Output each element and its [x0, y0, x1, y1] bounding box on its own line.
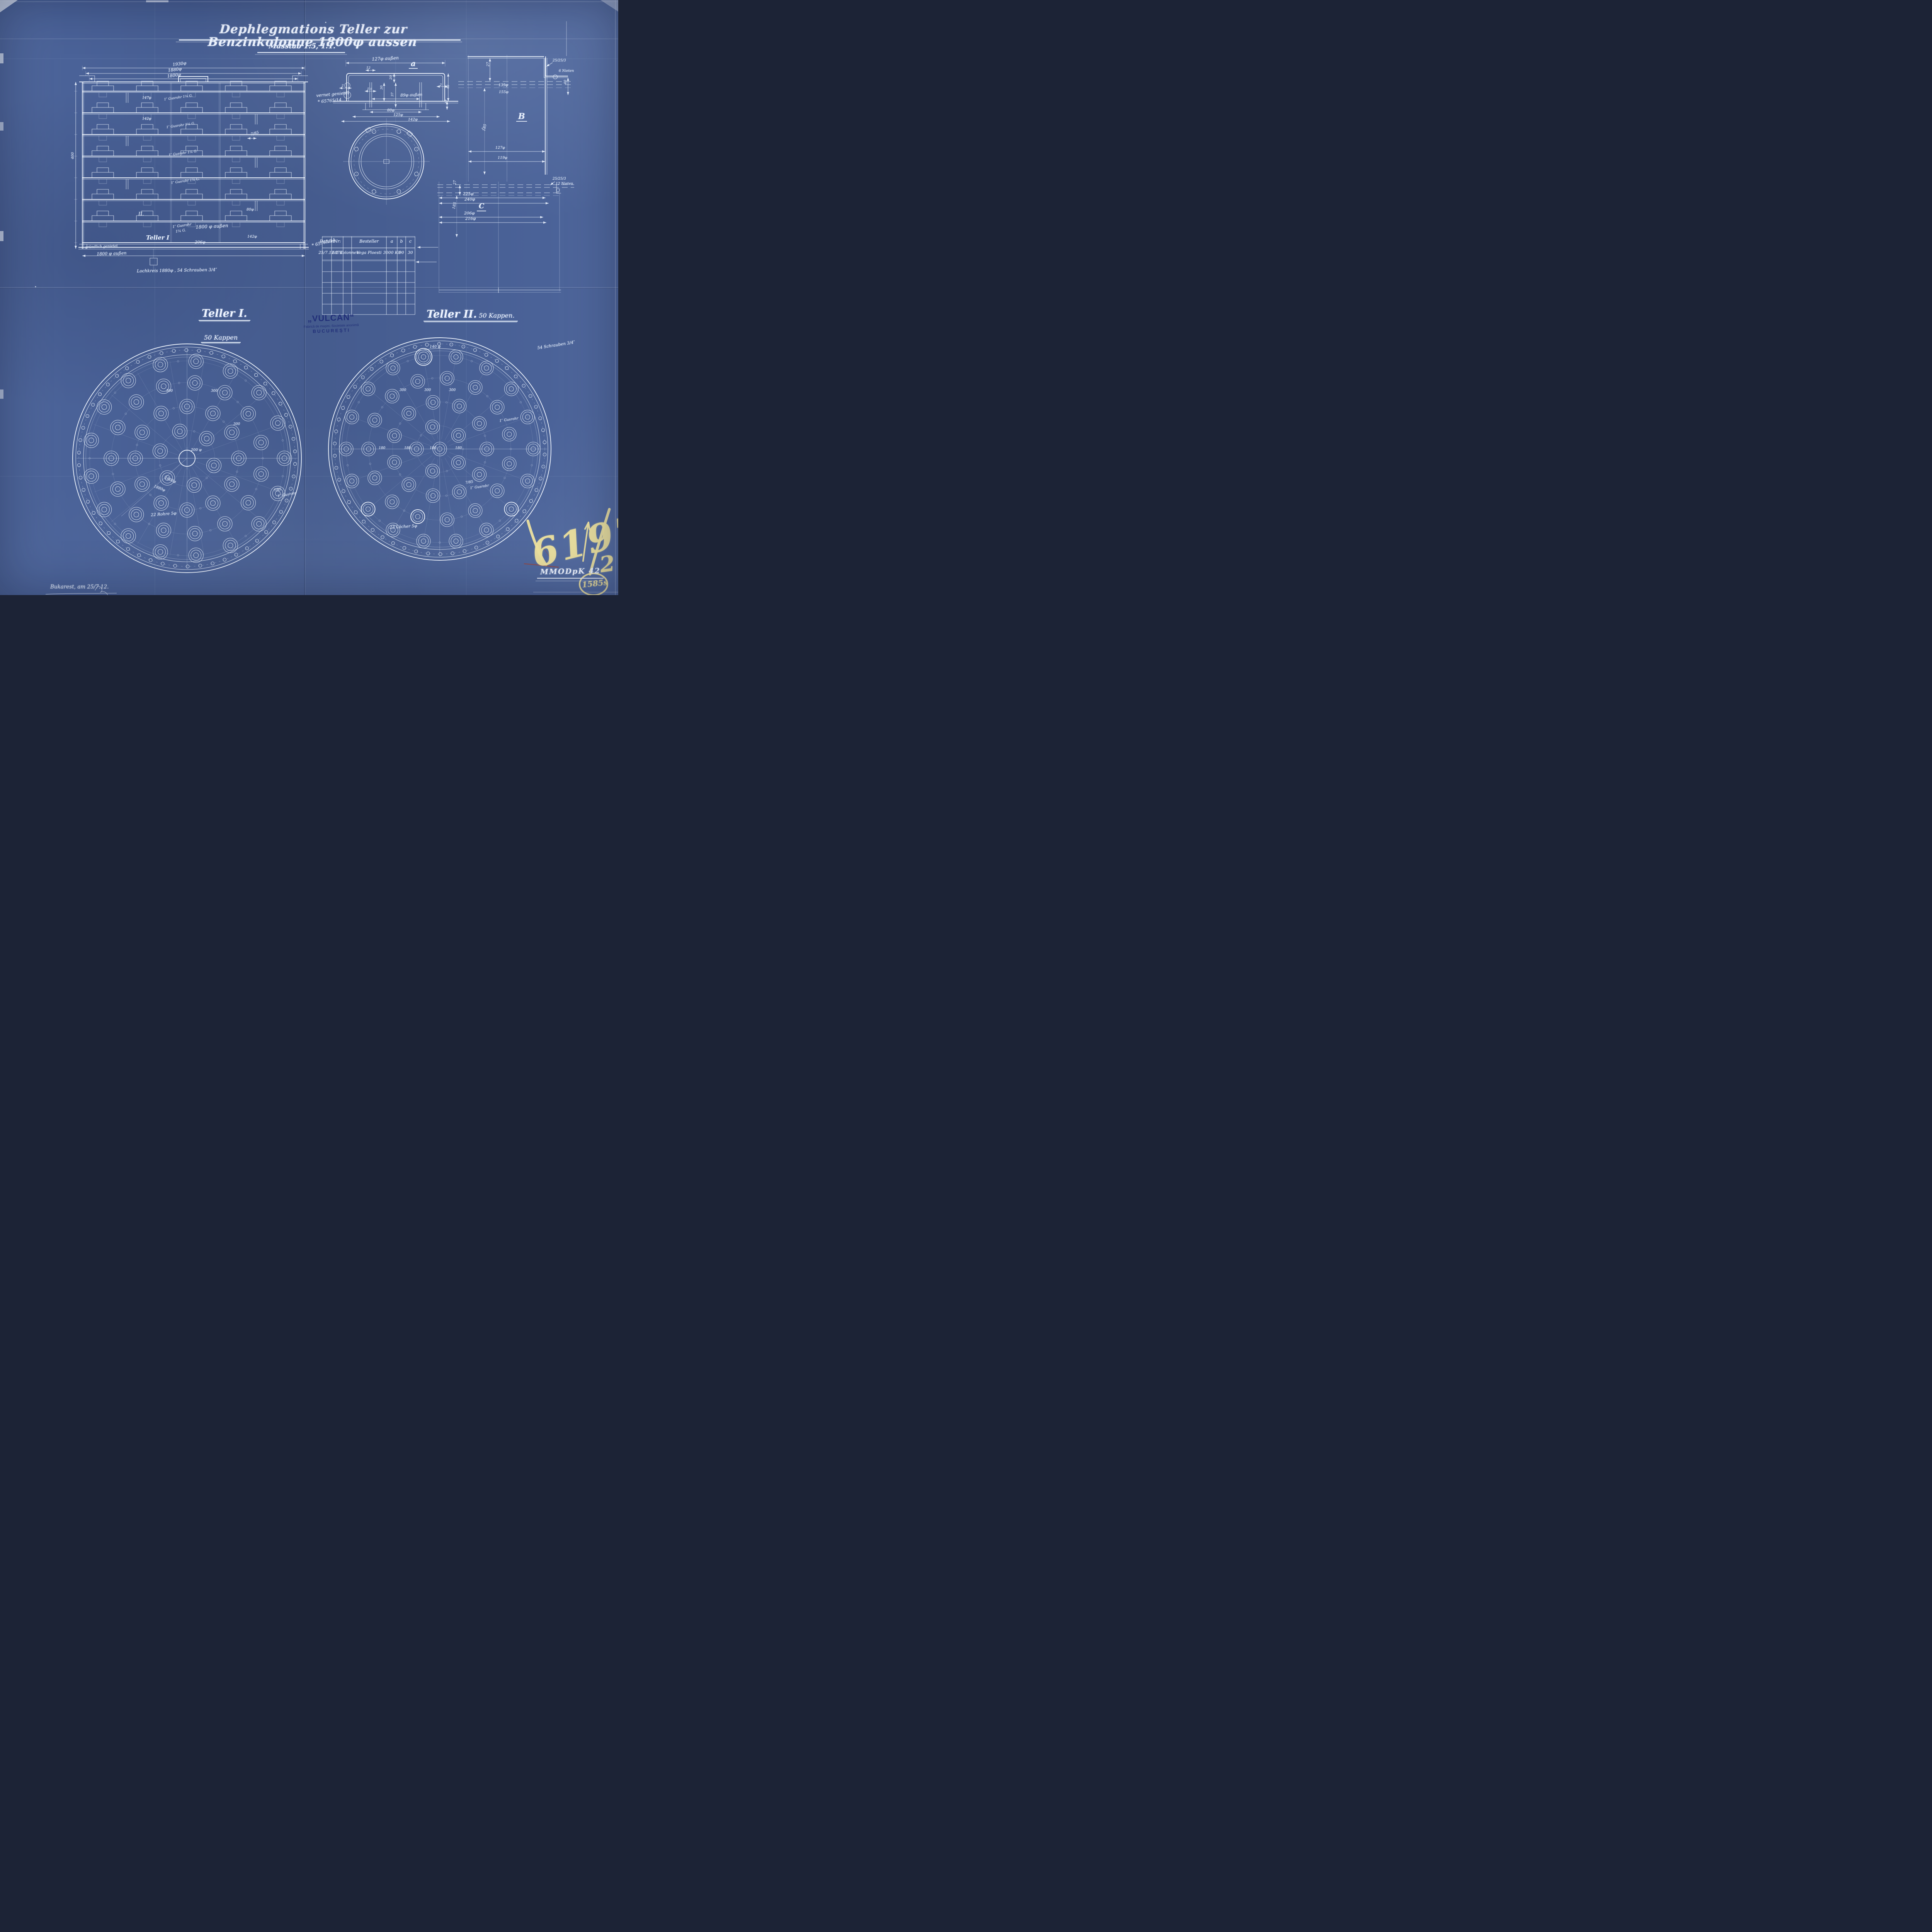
teller1-label: Teller I. — [199, 308, 250, 321]
table-cell: 30 — [408, 251, 413, 255]
detail-c-view — [437, 182, 574, 293]
blueprint-drawing — [0, 0, 618, 595]
teller2-label: Teller II. 50 Kappen. — [423, 309, 518, 321]
teller2-title: Teller II. — [427, 308, 477, 320]
flange-ring-view — [343, 118, 430, 205]
dimension-label: 119φ — [498, 156, 507, 160]
dimension-label: 140 φ — [430, 345, 440, 349]
stamp-company: „VULCAN“ — [294, 312, 368, 325]
signature-place-date: Bukarest, am 25/7.12. — [50, 584, 109, 590]
dimension-label: 125φ — [393, 113, 403, 117]
dimension-label: 300 — [449, 389, 456, 392]
vulcan-stamp: „VULCAN“ Fabrică de mașini.-Societate an… — [294, 312, 368, 335]
table-cell: Vega Ploesti — [356, 251, 381, 255]
table-header: c — [409, 239, 412, 243]
blueprint-sheet: Dephlegmations Teller zur Benzinkolonne … — [0, 0, 618, 595]
dimension-label: 1800 φ außen — [97, 251, 127, 256]
table-cell: 3000 Kil — [383, 251, 401, 255]
dimension-label: 142φ — [408, 118, 418, 122]
dimension-label: 142φ — [247, 235, 257, 239]
dimension-label: 300 — [424, 389, 431, 392]
dimension-label: 180 — [404, 447, 411, 450]
dimension-label: Teller I — [146, 235, 169, 241]
dimension-label: 27 — [454, 180, 457, 185]
sheet-edges — [0, 0, 618, 595]
table-header: b — [400, 239, 403, 243]
dimension-label: 180 — [430, 447, 436, 450]
dimension-label: 1½ — [367, 88, 372, 91]
table-header: Besteller — [359, 239, 379, 243]
dimension-label: 40 — [564, 80, 568, 84]
dimension-label: B — [516, 112, 527, 122]
dimension-label: 80φ — [247, 208, 254, 212]
dimension-label: 89φ außen — [400, 93, 422, 97]
dimension-label: 20 — [389, 75, 393, 80]
dimension-label: 30 — [380, 85, 384, 90]
corner-mark — [600, 0, 618, 12]
dimension-label: 80φ — [387, 109, 395, 112]
dimension-label: 42 — [447, 85, 450, 89]
dimension-label: 200 φ — [191, 448, 202, 452]
dimension-label: II. — [138, 212, 144, 217]
dimension-label: 135φ — [498, 83, 508, 87]
dimension-label: 240φ — [464, 197, 475, 202]
archive-number: 1585s — [582, 578, 608, 589]
table-cell: 90 — [399, 251, 404, 255]
dimension-label: a — [409, 60, 418, 69]
table-header: a — [391, 239, 393, 243]
table-cell: 2 Kolonnen — [336, 251, 359, 255]
section-arrows — [416, 247, 438, 262]
dimension-label: 300 — [166, 389, 173, 393]
dimension-label: 2 — [440, 83, 442, 87]
dimension-label: 155φ — [499, 90, 509, 94]
dimension-label: 12 Nieten — [556, 182, 573, 186]
dimension-label: 300 — [233, 423, 240, 426]
dimension-label: 206φ — [195, 240, 205, 245]
order-table-grid — [322, 236, 415, 315]
dimension-label: 142φ — [142, 117, 151, 121]
dimension-label: 300 — [400, 389, 406, 392]
fold-creases — [0, 0, 618, 595]
dimension-label: 6 Nieten — [559, 70, 574, 73]
dimension-label: 147φ — [142, 97, 151, 100]
teller1-plan-view — [73, 344, 301, 573]
dimension-label: 180 — [455, 447, 462, 450]
dimension-label: Lochkreis 1880φ , 54 Schrauben 3/4″ — [137, 267, 217, 273]
teller2-plan-view — [328, 338, 551, 560]
dimension-label: 37 — [391, 92, 395, 97]
dimension-label: 25/25/3 — [553, 177, 566, 181]
teller2-cap-label: 50 Kappen. — [479, 312, 514, 319]
teller1-cap-label: 50 Kappen — [201, 335, 241, 343]
dimension-label: 2 — [342, 84, 344, 88]
dimension-label: 400 — [71, 152, 75, 159]
dimension-label: 225φ — [463, 192, 473, 196]
dimension-label: 180 — [379, 447, 385, 450]
dimension-label: 206φ — [464, 211, 474, 216]
dimension-label: 25/25/3 — [553, 59, 566, 63]
dimension-label: 216φ — [465, 217, 476, 221]
detail-b-view — [458, 55, 571, 182]
dimension-label: 300 — [211, 389, 218, 393]
dimension-label: 127φ — [495, 146, 505, 150]
crayon-fraction: 2 — [598, 553, 616, 576]
dimension-label: C — [477, 203, 486, 211]
dimension-label: 27 — [487, 62, 490, 66]
dimension-label: 17 — [445, 100, 448, 104]
registry-mark: MMODpK 42 — [540, 568, 600, 576]
sheet-subtitle: Masstab 1:5, 1:1. — [256, 43, 348, 50]
corner-mark — [0, 0, 18, 12]
dimension-label: 12 — [366, 66, 371, 70]
